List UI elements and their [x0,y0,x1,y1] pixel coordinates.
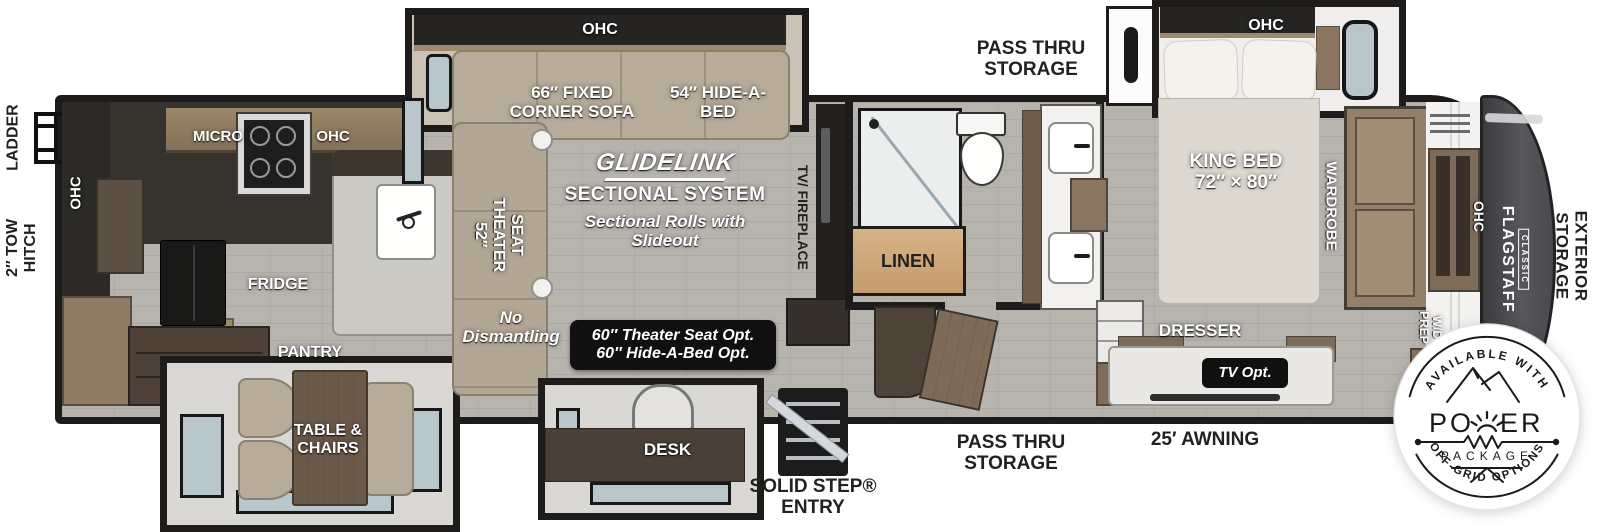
dresser-text: DRESSER [1159,321,1241,340]
badge-power-part2: ER [1500,408,1544,438]
cap-stripe-top [1485,113,1543,124]
corner-sofa-label: 66″ FIXED CORNER SOFA [490,80,654,124]
glidelink-logo: GLIDELINK [594,150,736,177]
exterior-storage-line1: EXTERIOR [1571,211,1590,302]
tv-opt-text: TV Opt. [1218,365,1271,382]
glidelink-swoosh [604,178,726,181]
opt-line2: 60″ Hide-A-Bed Opt. [596,345,749,363]
sofa-ohc-text: OHC [582,21,618,39]
dresser-tv [1150,394,1280,401]
dinette-label-line1: TABLE & [294,422,362,440]
dinette-window-left [180,414,224,498]
pass-thru-bottom-line1: PASS THRU [957,432,1065,453]
shower-head-icon [869,119,879,129]
kitchen-ohc-side-text: OHC [68,176,86,209]
pantry-text: PANTRY [278,344,342,362]
king-bed-label: KING BED 72″ × 80″ [1156,146,1316,198]
pass-thru-door-handle [1124,27,1138,83]
bedroom-window [1342,20,1378,100]
awning-text: 25′ AWNING [1151,429,1259,450]
hide-a-bed-line1: 54″ HIDE-A- [670,83,766,102]
bed-ohc-text: OHC [1248,17,1284,35]
pass-thru-bottom-label: PASS THRU STORAGE [935,428,1087,478]
rolls-line1: Sectional Rolls with [585,212,746,231]
flagstaff-name: FLAGSTAFF [1499,205,1517,312]
island-counter-dark [332,150,460,176]
vanity-sink-2 [1048,232,1094,284]
tow-hitch-line1: 2″ TOW [4,219,22,277]
stove [236,112,312,196]
power-package-badge: AVAILABLE WITH OFF-GRID OPTIONS PO ER PA… [1392,322,1582,512]
kitchen-counter [62,296,132,406]
pillow-2 [1241,39,1317,104]
dresser-label: DRESSER [1140,320,1260,342]
ladder-text: LADDER [3,105,22,172]
badge-power-part1: PO [1429,408,1474,438]
hide-a-bed-line2: BED [700,102,736,121]
kitchen-ohc-top-label: OHC [306,126,360,148]
options-box: 60″ Theater Seat Opt. 60″ Hide-A-Bed Opt… [570,320,776,370]
dinette-label: TABLE & CHAIRS [266,418,390,462]
flagstaff-series: CLASSIC [1518,228,1529,289]
vanity-wood-tower [1022,110,1042,304]
pass-thru-top-line2: STORAGE [984,59,1078,80]
solid-step-line2: ENTRY [781,497,845,518]
king-bed-line2: 72″ × 80″ [1195,172,1277,193]
front-ohc-label: OHC [1468,186,1490,246]
king-bed-line1: KING BED [1190,151,1283,172]
living-window-left-wall [402,98,424,184]
desk-chair [632,384,694,432]
nightstand [1316,26,1340,90]
hide-a-bed-label: 54″ HIDE-A- BED [650,80,786,124]
exterior-storage-label: EXTERIOR STORAGE [1548,196,1594,316]
tow-hitch-label: 2″ TOW HITCH [0,196,44,300]
badge-package-text: PACKAGE [1441,449,1533,463]
kitchen-ohc-side-label: OHC [64,160,90,226]
tv-fireplace-text: TV/ FIREPLACE [794,164,811,269]
dinette-label-line2: CHAIRS [297,440,358,458]
tv-fireplace-label: TV/ FIREPLACE [789,126,815,308]
king-bed [1158,98,1320,304]
tv-screen [821,128,830,223]
pass-thru-top-line1: PASS THRU [977,38,1085,59]
opt-line1: 60″ Theater Seat Opt. [592,327,754,345]
tow-hitch-line2: HITCH [22,219,40,277]
desk-window-bottom [590,482,731,505]
micro-text: MICRO [193,129,243,146]
sectional-system-text: SECTIONAL SYSTEM [565,184,766,205]
kitchen-open-cabinet [96,178,144,274]
theater-line2: THEATER [489,198,507,272]
ladder-label: LADDER [0,86,26,190]
fireplace-wall [816,104,846,308]
corner-sofa-line1: 66″ FIXED [531,83,613,102]
pass-thru-bottom-line2: STORAGE [964,453,1058,474]
pantry-label: PANTRY [260,342,360,364]
flagstaff-logo: CLASSIC FLAGSTAFF [1492,196,1536,322]
cupholder-1 [531,129,553,151]
no-dismantling-line1: No [500,308,523,327]
theater-line1: SEAT [507,198,525,272]
pillow-1 [1163,39,1239,104]
no-dismantling-label: No Dismantling [444,304,578,350]
tv-opt-badge: TV Opt. [1202,358,1288,388]
wardrobe-label: WARDROBE [1318,140,1344,272]
micro-label: MICRO [180,126,256,148]
theater-line3: 52″ [471,198,489,272]
theater-seat-label: SEAT THEATER 52″ [456,150,540,320]
exterior-storage-line2: STORAGE [1552,211,1571,302]
ladder-icon [26,110,64,166]
linen-text: LINEN [881,251,935,271]
island-sink [376,184,436,260]
solid-step-line1: SOLID STEP® [750,476,877,497]
desk-text: DESK [644,440,691,459]
medicine-cabinet [1070,178,1108,232]
wardrobe-text: WARDROBE [1322,161,1340,250]
front-ohc-text: OHC [1471,200,1488,231]
fridge-text: FRIDGE [248,276,308,294]
shower-glass [871,116,966,236]
desk-label: DESK [600,438,735,462]
awning-label: 25′ AWNING [1140,428,1270,452]
glidelink-block: GLIDELINK SECTIONAL SYSTEM Sectional Rol… [555,146,775,254]
kitchen-ohc-top-text: OHC [316,129,349,146]
fridge-label: FRIDGE [230,274,326,296]
sofa-window-left [426,54,452,112]
vanity-sink-1 [1048,122,1094,174]
bed-ohc-label: OHC [1236,14,1296,38]
pass-thru-top-label: PASS THRU STORAGE [960,34,1102,84]
rv-floorplan: TABLE & CHAIRS OHC 66″ FIXED CORNER SOFA… [0,0,1600,532]
fridge [160,240,226,326]
no-dismantling-line2: Dismantling [462,327,559,346]
corner-sofa-line2: CORNER SOFA [510,102,635,121]
sofa-ohc-label: OHC [570,18,630,42]
wardrobe-cabinet [1344,106,1430,310]
solid-step-label: SOLID STEP® ENTRY [737,472,889,522]
linen-cabinet: LINEN [850,226,966,296]
entry-steps [778,388,848,476]
rolls-line2: Slideout [631,231,698,250]
